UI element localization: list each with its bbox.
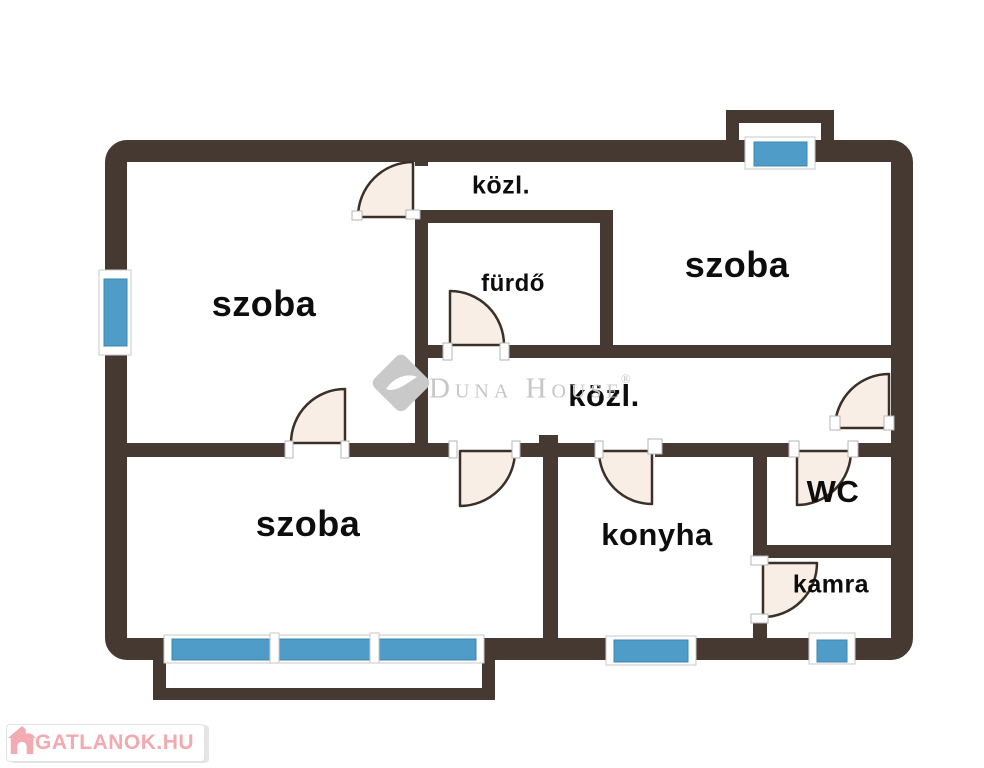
room-label-szoba-bottom-left: szoba — [256, 503, 361, 545]
room-label-szoba-top-right: szoba — [685, 244, 790, 286]
registered-trademark-symbol: ® — [621, 371, 631, 386]
door-jamb — [830, 416, 840, 430]
door-arc-kozl-right — [835, 374, 889, 428]
window-left-szoba — [99, 270, 131, 355]
door-jamb — [443, 343, 452, 360]
wall-segment — [726, 110, 739, 152]
wall-segment — [539, 435, 558, 444]
wall-segment — [753, 545, 903, 558]
wall-segment — [600, 210, 613, 358]
door-arc-furdo — [450, 291, 504, 345]
dunahouse-brand-text: Duna House — [429, 373, 624, 405]
door-jamb — [449, 441, 457, 458]
door-jamb — [751, 614, 768, 623]
wall-segment — [504, 345, 913, 358]
room-label-kamra: kamra — [793, 571, 869, 600]
door-jamb — [285, 441, 293, 458]
wall-segment — [821, 110, 834, 152]
house-icon — [7, 725, 37, 755]
room-label-furdo: fürdő — [481, 270, 545, 298]
door-arc-szoba-bottom — [460, 451, 515, 506]
door-jamb — [648, 439, 662, 454]
door-jamb — [512, 441, 520, 458]
door-jamb — [848, 441, 858, 457]
door-jamb — [595, 441, 603, 458]
wall-segment — [415, 156, 428, 166]
door-jamb — [751, 556, 768, 565]
floorplan-page: szoba közl. fürdő szoba közl. szoba kony… — [0, 0, 984, 768]
door-jamb — [789, 441, 799, 457]
door-arc-konyha — [599, 451, 652, 504]
wall-segment — [345, 443, 452, 457]
room-label-szoba-top-left: szoba — [212, 283, 317, 325]
room-label-konyha: konyha — [601, 517, 713, 553]
window-bottom-szoba-band — [164, 633, 484, 663]
door-jambs — [285, 210, 894, 623]
window-kamra — [809, 633, 855, 664]
door-arc-szoba-kozl-top — [358, 162, 413, 217]
door-jamb — [352, 211, 362, 220]
ingatlanok-badge-text: INGATLANOK.HU — [13, 731, 194, 755]
wall-segment — [117, 443, 291, 457]
door-jamb — [341, 441, 349, 458]
door-jamb — [406, 210, 420, 219]
wall-segment — [855, 443, 902, 457]
wall-segment — [415, 210, 613, 223]
door-arc-szoba-left — [291, 389, 345, 443]
ingatlanok-badge: INGATLANOK.HU — [6, 724, 205, 762]
room-label-wc: WC — [807, 474, 860, 510]
door-jamb — [500, 343, 509, 360]
wall-segment — [655, 443, 793, 457]
dunahouse-watermark: Duna House® — [429, 368, 634, 404]
room-label-kozl-top: közl. — [472, 172, 530, 201]
window-konyha — [606, 636, 696, 665]
door-jamb — [884, 416, 894, 430]
wall-segment — [543, 443, 558, 640]
window-top-bay — [745, 137, 815, 169]
wall-segment — [153, 688, 495, 700]
wall-segment — [726, 110, 834, 123]
wall-segment — [415, 215, 428, 451]
